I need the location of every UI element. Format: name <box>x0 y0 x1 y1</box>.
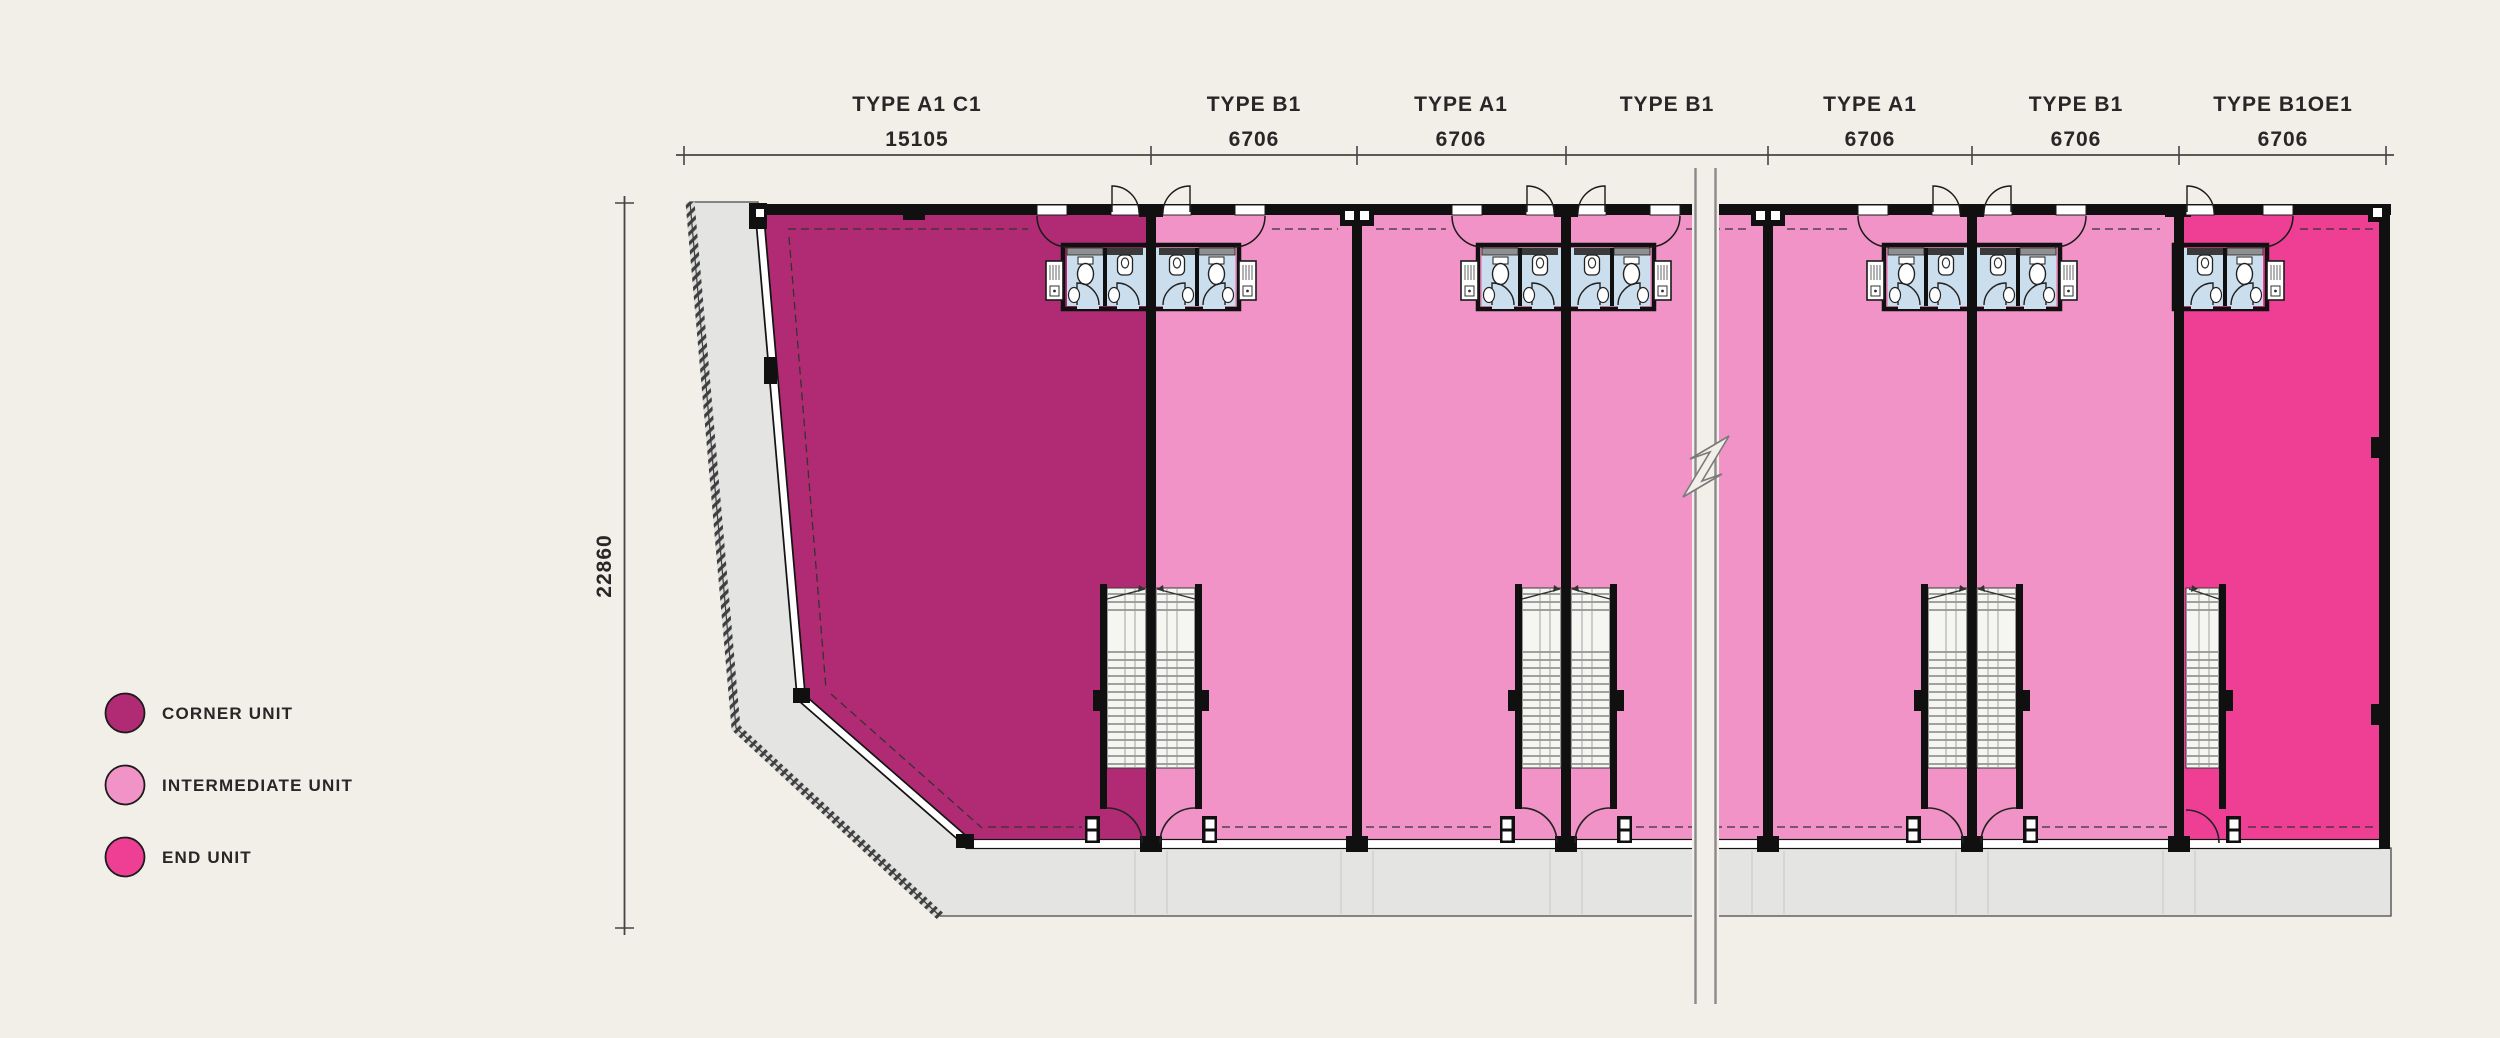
wall-tab <box>764 357 777 384</box>
legend-label: END UNIT <box>162 848 252 867</box>
wall-top-block <box>1139 204 1163 217</box>
floorplan-page: TYPE A1 C1 TYPE B1 TYPE A1 TYPE B1 TYPE … <box>0 0 2500 1038</box>
party-wall <box>1146 204 1156 849</box>
bottom-column <box>2168 836 2190 852</box>
bottom-column <box>1346 836 1368 852</box>
legend-label: INTERMEDIATE UNIT <box>162 776 353 795</box>
segment-type-label: TYPE A1 C1 <box>852 93 981 116</box>
wall-tab <box>2226 690 2233 711</box>
vertical-dim-label: 22860 <box>593 534 616 597</box>
wall-tab <box>2371 704 2381 725</box>
column-void <box>2373 208 2382 217</box>
party-wall <box>1352 204 1362 849</box>
segment-dim-label: 6706 <box>1436 128 1487 151</box>
segment-dim-label: 15105 <box>885 128 948 151</box>
segment-dim-label: 6706 <box>1845 128 1896 151</box>
bath-door-gap <box>2231 302 2253 309</box>
intermediate-unit-swatch <box>106 766 145 805</box>
end-unit-swatch <box>106 838 145 877</box>
mullion-block <box>903 204 925 220</box>
stair-wall <box>2219 584 2226 809</box>
segment-dim-label: 6706 <box>2258 128 2309 151</box>
party-wall <box>1561 204 1571 849</box>
bottom-column <box>1555 836 1577 852</box>
bottom-column <box>1961 836 1983 852</box>
bend-column <box>956 834 974 848</box>
party-wall <box>1763 204 1773 849</box>
wall-top-block <box>1960 204 1984 217</box>
bottom-column <box>1140 836 1162 852</box>
column-void <box>2230 820 2239 829</box>
floor-plan-canvas: TYPE A1 C1 TYPE B1 TYPE A1 TYPE B1 TYPE … <box>0 0 2500 1038</box>
bend-column <box>793 688 810 703</box>
column-void <box>756 209 764 217</box>
stair-flight <box>2186 588 2219 768</box>
rear-door-gap <box>2186 205 2214 215</box>
segment-type-label: TYPE A1 <box>1414 93 1508 116</box>
corner-unit-swatch <box>106 694 145 733</box>
shopfront-bottom <box>966 840 2380 849</box>
segment-dim-label: 6706 <box>1229 128 1280 151</box>
segment-type-label: TYPE B1 <box>1207 93 1302 116</box>
bottom-column <box>1757 836 1779 852</box>
party-wall <box>1967 204 1977 849</box>
segment-type-label: TYPE B1OE1 <box>2213 93 2353 116</box>
legend-label: CORNER UNIT <box>162 704 293 723</box>
wall-tab <box>2371 437 2381 458</box>
segment-type-label: TYPE B1 <box>1620 93 1715 116</box>
wall-top-block <box>1554 204 1578 217</box>
segment-type-label: TYPE A1 <box>1823 93 1917 116</box>
segment-type-label: TYPE B1 <box>2029 93 2124 116</box>
right-wall <box>2379 204 2390 849</box>
segment-dim-label: 6706 <box>2051 128 2102 151</box>
column-void <box>2230 832 2239 841</box>
bath-door-gap <box>2191 302 2213 309</box>
